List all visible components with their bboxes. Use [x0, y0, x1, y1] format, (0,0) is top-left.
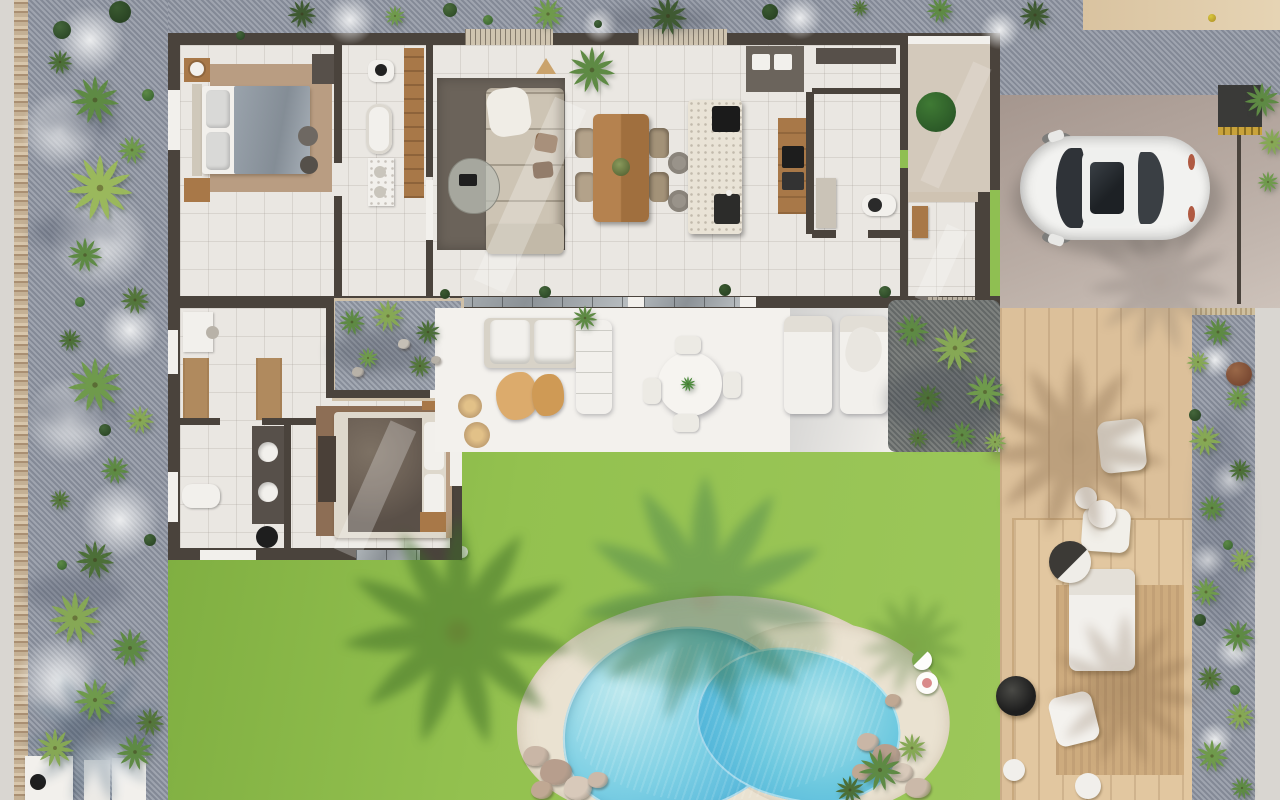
appliance [782, 172, 804, 190]
wall-cabinet-living-lower [426, 240, 433, 296]
oven [782, 146, 804, 168]
centerpiece [612, 158, 630, 176]
sliding-glass-door [442, 297, 628, 307]
courtyard-wall-west [326, 298, 334, 398]
wall-cabinet-living [426, 45, 433, 177]
floor-lamp-shade [536, 58, 556, 74]
wall-bedroom-ensuite-upper [334, 45, 342, 163]
entry-sill [908, 36, 990, 44]
pergola-north [638, 29, 727, 45]
kitchen [660, 45, 806, 296]
toilet [182, 484, 220, 508]
garden-spot [30, 774, 46, 790]
wall-sill [628, 297, 644, 307]
vanity [816, 178, 836, 228]
outdoor-chair [723, 372, 741, 398]
desk-chair [206, 326, 219, 339]
car-taillight [1188, 206, 1195, 222]
wall-bedroom-ensuite-lower [334, 196, 342, 296]
window-sill [168, 330, 178, 374]
clay-pot [1226, 362, 1252, 386]
planter-pot [1075, 773, 1101, 799]
house-wall-east-upper [990, 33, 1000, 190]
house-wall-west [168, 33, 180, 308]
outdoor-chair [643, 378, 661, 404]
window-sill [426, 180, 433, 240]
driveway-wall [1237, 128, 1241, 304]
window-sill [168, 90, 180, 150]
dresser [312, 54, 334, 84]
toilet-seat [868, 198, 882, 212]
gravel-bed-fringe [1192, 308, 1255, 315]
car-taillight [1188, 154, 1195, 170]
wall-bath-hall-left [812, 230, 836, 238]
coffee-table [448, 158, 500, 214]
entry-step [908, 192, 978, 202]
stool [256, 526, 278, 548]
entry-courtyard [908, 44, 990, 192]
house-wall-east-lower [975, 190, 990, 308]
bed-headboard [192, 84, 202, 176]
tall-cabinet [404, 48, 424, 198]
bed-pillow [206, 132, 230, 170]
entry-inner-wall-upper [900, 45, 908, 150]
nightstand [184, 178, 210, 202]
vanity-counter [252, 426, 284, 524]
pool-float [916, 672, 938, 694]
sofa-cushion [534, 320, 574, 364]
pouf [300, 156, 318, 174]
window [356, 550, 420, 560]
planter-pot [1003, 759, 1025, 781]
bathtub [366, 104, 392, 154]
outdoor-chair [673, 414, 699, 432]
table-lamp [190, 62, 204, 76]
table-tray [459, 174, 477, 186]
sink [258, 442, 278, 462]
toilet-seat [375, 64, 387, 76]
organic-coffee-table [532, 374, 564, 416]
armchair [1096, 418, 1147, 475]
sink [258, 482, 278, 502]
daybed [1069, 569, 1135, 671]
entry-inner-wall-lower [900, 168, 908, 296]
terrace-planting-patch [888, 300, 1000, 452]
wall-bath-hall-right [868, 230, 900, 238]
floor-plan-scene [0, 0, 1280, 800]
console-table [912, 206, 928, 238]
terrace [435, 308, 1000, 452]
sliding-glass-door [644, 297, 740, 307]
planter-gold-trim [1218, 127, 1262, 135]
window-sill [168, 472, 178, 522]
guest-bathroom [814, 94, 900, 234]
window-sill [200, 550, 256, 560]
bar-stool [668, 190, 690, 212]
dining-chair [575, 172, 595, 202]
sofa-cushion [490, 320, 530, 364]
house-wall-north [168, 33, 1000, 45]
bedroom-main [180, 45, 334, 296]
faucet [726, 190, 732, 196]
garden-wall-top-right [1083, 0, 1280, 30]
basket [458, 394, 482, 418]
washer [752, 54, 770, 70]
basket [464, 422, 490, 448]
fire-bowl [996, 676, 1036, 716]
sink [374, 166, 386, 178]
chaise-lounge [576, 320, 612, 414]
bench [318, 436, 336, 502]
cooktop [712, 106, 740, 132]
pool-float [912, 650, 932, 670]
sofa-pillow [534, 132, 559, 154]
wall-corridor-bath-left [180, 418, 220, 425]
gravel-garden-left [28, 0, 168, 800]
nightstand [420, 512, 446, 532]
dryer [774, 54, 792, 70]
second-bedroom [291, 390, 450, 548]
dining-chair [575, 128, 595, 158]
wall-kitchen-bath [806, 92, 814, 234]
garden-pad [112, 758, 146, 800]
ensuite-bathroom [342, 45, 404, 296]
outdoor-chair [675, 336, 701, 354]
closet-rail [816, 48, 896, 64]
wardrobe [256, 358, 282, 420]
wardrobe [183, 358, 209, 420]
wood-deck [1000, 308, 1192, 800]
wall-sill [740, 297, 756, 307]
wall-bath-bedroom2 [284, 424, 291, 548]
sofa-pillow [532, 161, 554, 179]
sofa-chaise [486, 224, 564, 254]
car-windshield [1056, 148, 1084, 228]
car-sunroof [1090, 162, 1124, 214]
family-bathroom [180, 425, 284, 548]
side-path-right [1255, 308, 1280, 800]
garden-pad [84, 760, 110, 800]
bed-blanket [348, 418, 422, 532]
bar-stool [668, 152, 690, 174]
car [1020, 136, 1210, 240]
throw-blanket [485, 85, 533, 138]
bed-pillow [206, 90, 230, 128]
outdoor-dining-table [658, 352, 722, 416]
sink [374, 186, 386, 198]
sun-lounger [784, 316, 832, 414]
pouf [298, 126, 318, 146]
coffee-table [1049, 541, 1091, 583]
island-sink [714, 194, 740, 224]
pergola-north [465, 29, 553, 45]
side-table [1088, 500, 1116, 528]
